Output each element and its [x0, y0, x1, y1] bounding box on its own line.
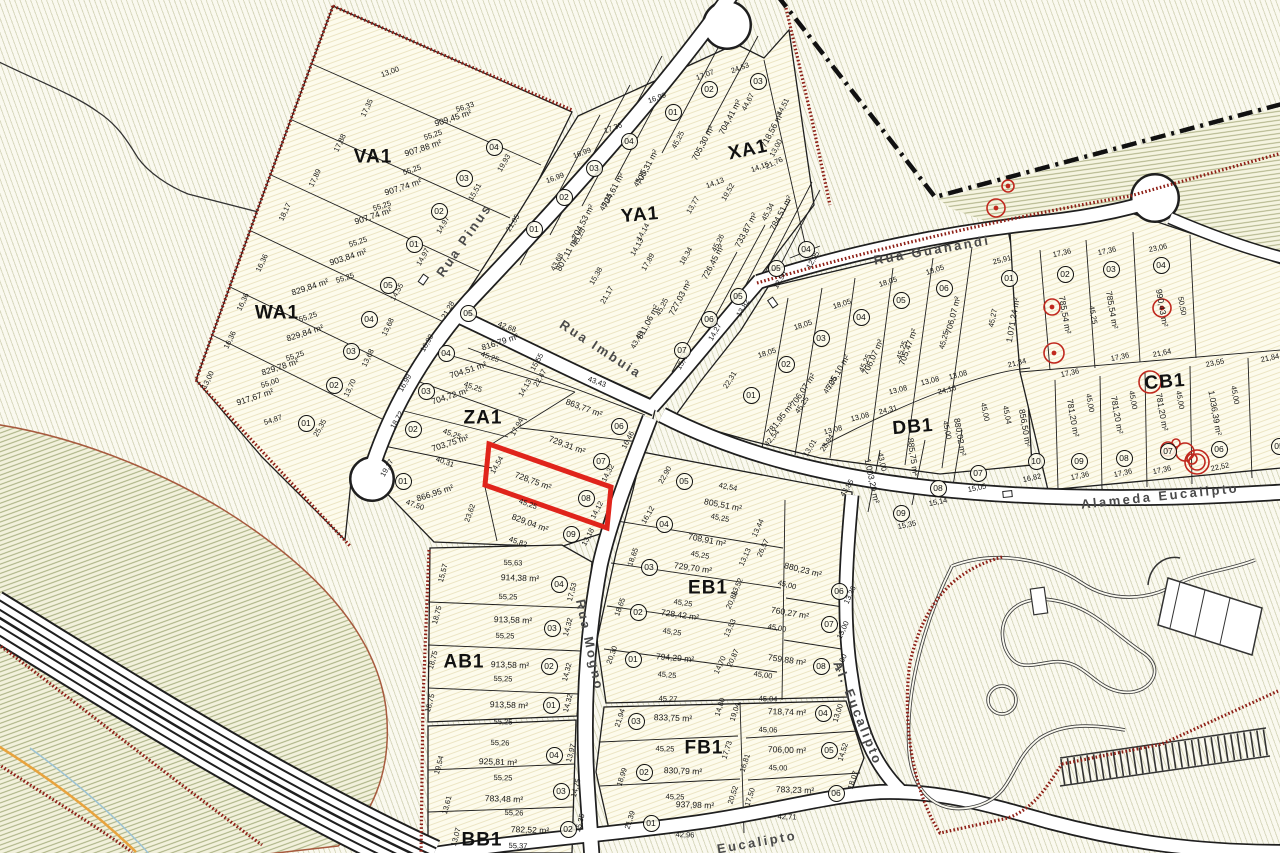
contour-line [0, 60, 262, 213]
map-canvas [0, 0, 1280, 853]
plat-map: 909,45 m²907,88 m²907,74 m²907,74 m²903,… [0, 0, 1280, 853]
block-cb1 [1010, 212, 1280, 490]
block-ab1 [428, 545, 592, 722]
parking-stalls [1060, 728, 1270, 786]
